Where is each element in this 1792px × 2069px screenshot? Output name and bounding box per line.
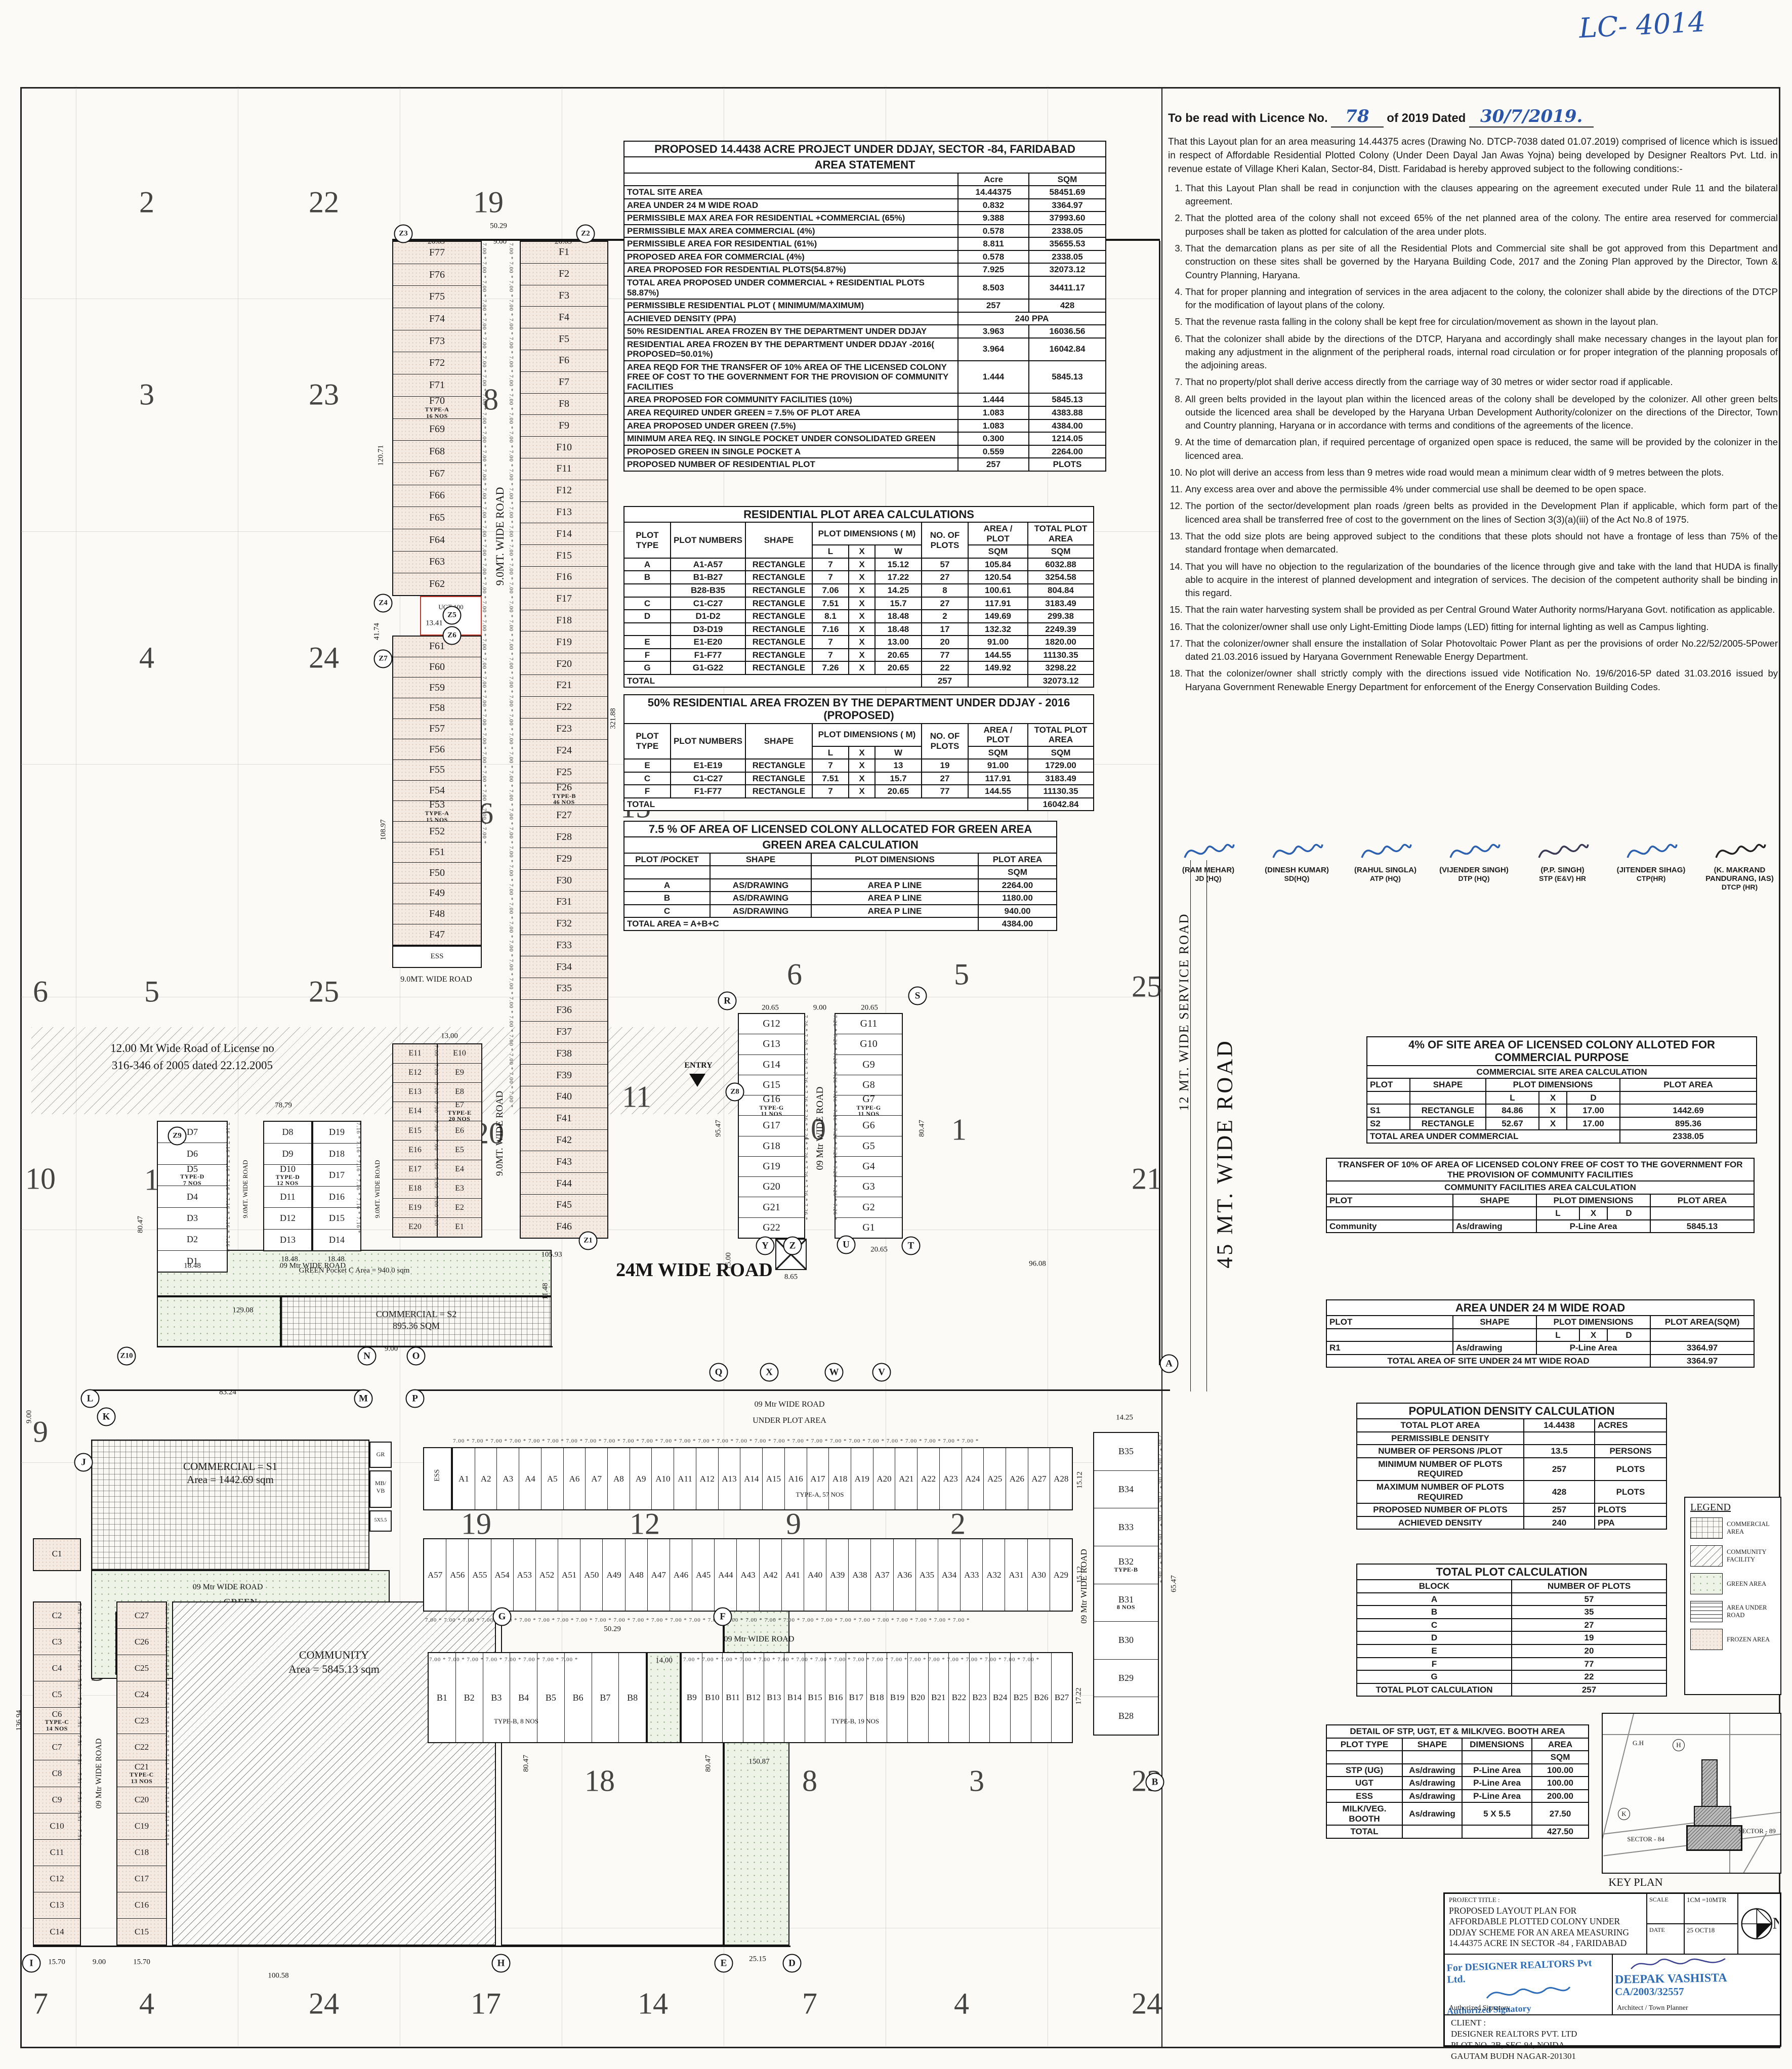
plot-cell: F60 xyxy=(393,657,481,678)
table-cell: L xyxy=(1536,1207,1579,1220)
dimension-text: 25.15 xyxy=(749,1955,766,1964)
table-cell: X xyxy=(1539,1104,1567,1117)
table-cell: 5845.13 xyxy=(1650,1220,1754,1233)
dimension-text: 14.25 xyxy=(1116,1414,1133,1422)
grid-marker-T: T xyxy=(902,1237,921,1255)
plot-cell: F9 xyxy=(521,414,607,436)
legend-swatch xyxy=(1690,1517,1723,1539)
table-cell: RECTANGLE xyxy=(745,597,812,610)
table-cell: 1.083 xyxy=(958,419,1029,433)
plot-cell: A8 xyxy=(607,1448,630,1509)
boundary-line xyxy=(1161,88,1162,2047)
plot-cell: C14 xyxy=(34,1918,80,1945)
table-cell: POPULATION DENSITY CALCULATION xyxy=(1357,1403,1666,1419)
signatory-name: (RAHUL SINGLA) xyxy=(1341,866,1430,874)
table-cell: 57 xyxy=(922,558,968,571)
plot-cell: G8 xyxy=(836,1075,902,1095)
table-cell: F xyxy=(624,785,671,798)
plot-cell: A45 xyxy=(692,1539,714,1611)
survey-number: 1 xyxy=(951,1113,967,1148)
table-cell: 5845.13 xyxy=(1029,361,1106,394)
client-block: CLIENT : DESIGNER REALTORS PVT. LTD PLOT… xyxy=(1445,2015,1780,2064)
plot-cell: E14 xyxy=(393,1102,437,1121)
dimension-text: 15.12 xyxy=(1076,1471,1085,1489)
plan-text: TYPE-A, 57 NOS xyxy=(796,1491,844,1499)
date-value: 25 OCT18 xyxy=(1685,1924,1737,1954)
signatory-name: (P.P. SINGH) xyxy=(1518,866,1607,874)
survey-number: 6 xyxy=(787,957,802,992)
dimension-ticks: 7.51 * 7.51 * 7.51 * 7.51 * 7.51 * 7.51 … xyxy=(164,1603,170,1945)
grid-marker-Z: Z xyxy=(783,1237,802,1255)
signatory-name: (K. MAKRAND PANDURANG, IAS) xyxy=(1695,866,1784,883)
plot-cell: F51 xyxy=(393,842,481,863)
table-cell: RECTANGLE xyxy=(745,649,812,662)
plot-strip: D7D6D5TYPE-D7 NOSD4D3D2D1 xyxy=(157,1121,228,1273)
table-cell: 7.16 xyxy=(812,623,849,636)
dimension-text: 18.48 xyxy=(184,1262,201,1271)
plot-cell: A38 xyxy=(848,1539,870,1611)
plot-cell: A14 xyxy=(740,1448,762,1509)
plot-cell: G11 xyxy=(836,1014,902,1034)
grid-marker-V: V xyxy=(872,1363,891,1382)
dimension-text: 15.00 xyxy=(725,1252,733,1270)
project-title-line: AFFORDABLE PLOTTED COLONY UNDER xyxy=(1449,1916,1642,1927)
plot-cell: F75 xyxy=(393,285,481,308)
plan-text: TYPE-B, 19 NOS xyxy=(831,1717,879,1725)
table-cell: 4384.00 xyxy=(978,917,1057,931)
plan-area-label: GR xyxy=(377,1451,385,1458)
table-cell: NO. OF PLOTS xyxy=(922,724,968,759)
plot-cell: G20 xyxy=(739,1176,804,1197)
plot-cell: F13 xyxy=(521,501,607,523)
table-cell: As/drawing xyxy=(1402,1802,1462,1825)
plot-cell: C15 xyxy=(117,1918,166,1945)
residential-table-grid: RESIDENTIAL PLOT AREA CALCULATIONSPLOT T… xyxy=(623,506,1094,688)
table-cell: PLOT DIMENSIONS ( M) xyxy=(812,724,922,746)
plot-cell: F5 xyxy=(521,328,607,350)
grid-marker-D: D xyxy=(783,1954,802,1973)
dimension-text: 20.65 xyxy=(428,238,445,246)
signature-row: (RAM MEHAR)JD (HQ)(DINESH KUMAR)SD(HQ)(R… xyxy=(1164,837,1784,891)
plot-cell: C9 xyxy=(34,1787,80,1813)
license-date-handwritten: 30/7/2019. xyxy=(1469,106,1594,128)
license-condition: All green belts provided in the layout p… xyxy=(1185,393,1778,433)
plot-cell: F67 xyxy=(393,462,481,485)
plan-text: 9.0MT. WIDE ROAD xyxy=(494,1091,506,1176)
legend-item: COMMERCIAL AREA xyxy=(1690,1517,1775,1539)
plot-cell: F45 xyxy=(521,1194,607,1216)
table-cell: COMMERCIAL SITE AREA CALCULATION xyxy=(1367,1066,1757,1079)
plot-cell: A6 xyxy=(563,1448,586,1509)
plan-text: 12 MT. WIDE SERVICE ROAD xyxy=(1177,913,1192,1111)
table-cell: X xyxy=(849,636,875,649)
table-cell: 18.48 xyxy=(875,610,922,623)
legend-swatch xyxy=(1690,1573,1723,1594)
table-cell: SHAPE xyxy=(1453,1316,1536,1329)
legend-item: GREEN AREA xyxy=(1690,1573,1775,1594)
table-cell xyxy=(1326,1751,1402,1764)
grid-marker-L: L xyxy=(81,1389,100,1408)
plot-cell: A35 xyxy=(915,1539,938,1611)
table-cell: PLOTS xyxy=(1029,458,1106,471)
title-block: PROJECT TITLE : PROPOSED LAYOUT PLAN FOR… xyxy=(1443,1892,1781,2047)
signatory-title: ATP (HQ) xyxy=(1341,874,1430,882)
table-cell: 7.5 % OF AREA OF LICENSED COLONY ALLOCAT… xyxy=(624,821,1057,837)
project-title-line: 14.44375 ACRE IN SECTOR -84 , FARIDABAD xyxy=(1449,1938,1642,1949)
plot-cell: A20 xyxy=(873,1448,895,1509)
table-cell: As/drawing xyxy=(1402,1764,1462,1777)
plan-text: 9.0MT. WIDE ROAD xyxy=(241,1160,249,1218)
table-cell: B xyxy=(624,892,710,905)
plot-cell: B15 xyxy=(805,1653,825,1742)
table-cell: RESIDENTIAL PLOT AREA CALCULATIONS xyxy=(624,506,1094,522)
plot-cell: F73 xyxy=(393,330,481,352)
table-cell: RECTANGLE xyxy=(745,584,812,597)
license-notes: To be read with Licence No. 78 of 2019 D… xyxy=(1168,106,1778,697)
table-cell: PPA xyxy=(1595,1516,1666,1530)
table-cell: 7.26 xyxy=(812,661,849,674)
dimension-text: 80.47 xyxy=(522,1755,531,1772)
table-cell: 0.559 xyxy=(958,445,1029,458)
table-cell: D xyxy=(1357,1631,1512,1644)
boundary-line xyxy=(415,1389,1170,1391)
table-cell: 1442.69 xyxy=(1620,1104,1757,1117)
license-condition: That this Layout Plan shall be read in c… xyxy=(1185,182,1778,208)
table-cell: TOTAL xyxy=(624,798,1028,811)
plot-strip: G12G13G14G15G16TYPE-G11 NOSG17G18G19G20G… xyxy=(738,1013,805,1239)
table-cell xyxy=(1595,1432,1666,1445)
table-cell xyxy=(710,866,811,879)
table-cell: PLOT NUMBERS xyxy=(671,522,745,558)
grid-marker-S: S xyxy=(908,987,927,1005)
plot-cell: F53TYPE-A15 NOS xyxy=(393,800,481,821)
legend-item: AREA UNDER ROAD xyxy=(1690,1601,1775,1622)
table-cell: 0.832 xyxy=(958,199,1029,212)
plot-cell: A47 xyxy=(647,1539,670,1611)
grid-marker-Z9: Z9 xyxy=(168,1127,187,1146)
table-cell: DIMENSIONS xyxy=(1462,1738,1532,1751)
plot-cell: C17 xyxy=(117,1866,166,1892)
road24-table: AREA UNDER 24 M WIDE ROADPLOTSHAPEPLOT D… xyxy=(1326,1299,1755,1368)
plot-cell: B18 xyxy=(866,1653,887,1742)
table-cell: S2 xyxy=(1367,1117,1410,1130)
table-cell: ACHIEVED DENSITY xyxy=(1357,1516,1524,1530)
signature: (K. MAKRAND PANDURANG, IAS)DTCP (HR) xyxy=(1695,837,1784,891)
plot-cell: C22 xyxy=(117,1734,166,1760)
table-cell: TOTAL PLOT AREA xyxy=(1357,1419,1524,1432)
plot-cell: B14 xyxy=(784,1653,805,1742)
plot-cell: A3 xyxy=(496,1448,519,1509)
plot-cell: F39 xyxy=(521,1064,607,1086)
plan-text: 09 Mtr WIDE ROAD xyxy=(815,1087,826,1170)
plan-area: MB/VB xyxy=(369,1470,392,1508)
plot-cell: A16 xyxy=(784,1448,807,1509)
table-cell: 7.51 xyxy=(812,597,849,610)
table-cell: 1.444 xyxy=(958,361,1029,394)
plot-cell: F72 xyxy=(393,352,481,374)
table-cell: SHAPE xyxy=(710,853,811,866)
table-cell: X xyxy=(1579,1329,1607,1342)
plot-cell: F30 xyxy=(521,869,607,891)
table-cell: 20 xyxy=(1512,1644,1666,1658)
commercial-table: 4% OF SITE AREA OF LICENSED COLONY ALLOT… xyxy=(1366,1036,1757,1144)
plot-cell: G7TYPE-G11 NOS xyxy=(836,1095,902,1115)
keyplan-site-shape xyxy=(1701,1759,1718,1809)
signature: (DINESH KUMAR)SD(HQ) xyxy=(1253,837,1341,891)
table-cell: P-Line Area xyxy=(1462,1777,1532,1790)
plot-cell: C4 xyxy=(34,1655,80,1681)
plot-cell: A19 xyxy=(851,1448,873,1509)
plot-cell: F59 xyxy=(393,677,481,698)
table-cell: SQM xyxy=(978,866,1057,879)
legend-item: FROZEN AREA xyxy=(1690,1629,1775,1650)
plot-cell: G22 xyxy=(739,1217,804,1238)
table-cell: 7.925 xyxy=(958,263,1029,276)
table-cell xyxy=(1524,1432,1595,1445)
table-cell: PLOTS xyxy=(1595,1503,1666,1516)
table-cell: F1-F77 xyxy=(671,649,745,662)
table-cell: D xyxy=(1567,1091,1620,1105)
table-cell: AREA REQUIRED UNDER GREEN = 7.5% OF PLOT… xyxy=(624,406,958,419)
survey-number: 14 xyxy=(638,1987,668,2021)
table-cell: 17 xyxy=(922,623,968,636)
table-cell: AREA / PLOT xyxy=(968,724,1028,746)
table-cell: PLOT DIMENSIONS xyxy=(1486,1078,1620,1091)
table-cell: 895.36 xyxy=(1620,1117,1757,1130)
table-cell: F xyxy=(624,649,671,662)
plan-area: COMMERCIAL = S2895.36 SQM xyxy=(281,1296,552,1347)
survey-number: 2 xyxy=(950,1507,966,1542)
plot-cell: A48 xyxy=(625,1539,647,1611)
grid-marker-Z10: Z10 xyxy=(117,1347,136,1366)
table-cell: PERSONS xyxy=(1595,1445,1666,1458)
table-cell: 132.32 xyxy=(968,623,1028,636)
entry-arrow xyxy=(689,1074,705,1087)
plot-cell: B11 xyxy=(722,1653,743,1742)
grid-marker-I: I xyxy=(22,1954,41,1973)
plot-cell: F63 xyxy=(393,551,481,573)
dimension-text: 321.88 xyxy=(609,708,618,729)
table-cell: AREA STATEMENT xyxy=(624,157,1106,173)
plan-area: ESS xyxy=(423,1447,452,1510)
plot-cell: F74 xyxy=(393,308,481,330)
plot-cell: F16 xyxy=(521,566,607,588)
community-table: TRANSFER OF 10% OF AREA OF LICENSED COLO… xyxy=(1326,1158,1755,1233)
plot-strip: F61F60F59F58F57F56F55F54F53TYPE-A15 NOSF… xyxy=(392,636,482,946)
survey-number: 12 xyxy=(630,1507,660,1542)
plot-cell: E7TYPE-E20 NOS xyxy=(438,1102,481,1121)
table-cell: 50% RESIDENTIAL AREA FROZEN BY THE DEPAR… xyxy=(624,325,958,338)
survey-number: 24 xyxy=(309,1987,339,2021)
legend-swatch xyxy=(1690,1629,1723,1650)
plot-cell: B8 xyxy=(618,1653,646,1742)
dimension-text: 50.29 xyxy=(490,222,507,231)
dimension-text: 18.48 xyxy=(327,1255,345,1264)
plot-strip: F77F76F75F74F73F72F71F70TYPE-A16 NOSF69F… xyxy=(392,241,482,596)
plot-cell: B26 xyxy=(1031,1653,1052,1742)
plot-cell: G15 xyxy=(739,1075,804,1095)
table-cell: RECTANGLE xyxy=(1410,1117,1486,1130)
grid-marker-Z7: Z7 xyxy=(374,650,393,668)
table-cell: W xyxy=(875,746,922,759)
survey-number: 25 xyxy=(309,975,339,1009)
signatory-title: DTP (HQ) xyxy=(1430,874,1518,882)
table-cell xyxy=(624,866,710,879)
plot-cell: B12 xyxy=(743,1653,764,1742)
table-cell: SHAPE xyxy=(1410,1078,1486,1091)
dimension-ticks: 7.00 * 7.00 * 7.00 * 7.00 * 7.00 * 7.00 … xyxy=(429,1657,647,1663)
signatory-title: JD (HQ) xyxy=(1164,874,1253,882)
table-cell: TOTAL PLOT CALCULATION xyxy=(1357,1564,1666,1580)
table-cell: 2264.00 xyxy=(1029,445,1106,458)
table-cell: 144.55 xyxy=(968,649,1028,662)
table-cell: D xyxy=(1607,1329,1650,1342)
table-cell: ESS xyxy=(1326,1790,1402,1803)
architect-name-stamp: DEEPAK VASHISTA xyxy=(1615,1970,1778,1987)
table-cell xyxy=(1326,1207,1453,1220)
table-cell: PERMISSIBLE AREA FOR RESIDENTIAL (61%) xyxy=(624,237,958,250)
plot-cell: C26 xyxy=(117,1628,166,1655)
dimension-text: 96.08 xyxy=(1029,1260,1046,1269)
legend: LEGEND COMMERCIAL AREACOMMUNITY FACILITY… xyxy=(1684,1497,1781,1695)
plot-cell: A22 xyxy=(917,1448,939,1509)
table-cell: 1214.05 xyxy=(1029,432,1106,445)
table-cell: P-Line Area xyxy=(1536,1220,1650,1233)
plot-cell: G16TYPE-G11 NOS xyxy=(739,1095,804,1115)
grid-marker-Z4: Z4 xyxy=(374,594,393,613)
table-cell: 15.7 xyxy=(875,772,922,785)
table-cell: 940.00 xyxy=(978,905,1057,918)
dimension-text: 20.65 xyxy=(555,238,572,246)
table-cell: 257 xyxy=(1512,1683,1666,1697)
road24-table-grid: AREA UNDER 24 M WIDE ROADPLOTSHAPEPLOT D… xyxy=(1326,1299,1755,1368)
table-cell: X xyxy=(849,610,875,623)
dimension-text: 83.24 xyxy=(219,1388,236,1397)
table-cell: BLOCK xyxy=(1357,1580,1512,1593)
table-cell: 27 xyxy=(922,571,968,584)
table-cell: PLOT DIMENSIONS xyxy=(1536,1316,1650,1329)
table-cell: TOTAL PLOT AREA xyxy=(1028,522,1094,545)
grid-marker-X: X xyxy=(760,1363,779,1382)
plot-cell: F14 xyxy=(521,523,607,544)
plot-cell: A36 xyxy=(893,1539,915,1611)
project-title-line: DDJAY SCHEME FOR AN AREA MEASURING xyxy=(1449,1927,1642,1938)
table-cell: 17.00 xyxy=(1567,1117,1620,1130)
dimension-text: 9.00 xyxy=(385,1345,398,1354)
table-cell: 1.083 xyxy=(958,406,1029,419)
plot-cell: A42 xyxy=(759,1539,781,1611)
plot-cell: B29 xyxy=(1094,1659,1158,1697)
survey-number: 4 xyxy=(139,641,154,675)
table-cell xyxy=(1402,1825,1462,1838)
plot-cell: G10 xyxy=(836,1034,902,1054)
dimension-text: 108.97 xyxy=(380,819,388,840)
plot-cell: A27 xyxy=(1028,1448,1050,1509)
table-cell: 13.5 xyxy=(1524,1445,1595,1458)
plot-cell: D12 xyxy=(264,1207,311,1229)
table-cell: SHAPE xyxy=(745,522,812,558)
dimension-ticks: 7.16 * 7.16 * 7.16 * 7.16 * 7.16 * 7.16 … xyxy=(225,1122,231,1272)
table-cell xyxy=(1326,1329,1453,1342)
table-cell: SHAPE xyxy=(745,724,812,759)
table-cell: C xyxy=(624,905,710,918)
keyplan-site-shape xyxy=(1686,1825,1742,1851)
dimension-text: 80.47 xyxy=(704,1755,713,1772)
table-cell: 52.67 xyxy=(1486,1117,1539,1130)
plot-cell: B16 xyxy=(825,1653,846,1742)
table-cell: C xyxy=(624,597,671,610)
drawing-sheet: LC- 4014 To be read with Licence No. 78 … xyxy=(0,0,1792,2069)
table-cell: 7 xyxy=(812,558,849,571)
green-table: 7.5 % OF AREA OF LICENSED COLONY ALLOCAT… xyxy=(623,821,1057,931)
architect-label: Architect / Town Planner xyxy=(1617,2004,1688,2012)
table-cell: 257 xyxy=(958,458,1029,471)
signature: (JITENDER SIHAG)CTP(HR) xyxy=(1607,837,1695,891)
table-cell: L xyxy=(812,746,849,759)
plot-cell: E11 xyxy=(393,1044,437,1063)
plot-cell: B20 xyxy=(907,1653,928,1742)
plot-cell: A33 xyxy=(960,1539,982,1611)
table-cell: PROPOSED AREA FOR COMMERCIAL (4%) xyxy=(624,250,958,264)
plot-cell: G5 xyxy=(836,1136,902,1156)
table-cell: PLOT xyxy=(1367,1078,1410,1091)
table-cell: 1180.00 xyxy=(978,892,1057,905)
table-cell: 3.963 xyxy=(958,325,1029,338)
plot-cell: E4 xyxy=(438,1160,481,1179)
table-cell: UGT xyxy=(1326,1777,1402,1790)
table-cell: 144.55 xyxy=(968,785,1028,798)
plot-cell: G3 xyxy=(836,1176,902,1197)
table-cell: 14.4438 xyxy=(1524,1419,1595,1432)
plot-cell: F25 xyxy=(521,761,607,783)
keyplan-k-marker: K xyxy=(1618,1808,1630,1820)
plot-cell: F24 xyxy=(521,739,607,761)
plot-cell: F21 xyxy=(521,674,607,696)
plot-cell: G6 xyxy=(836,1115,902,1135)
table-cell: 120.54 xyxy=(968,571,1028,584)
plot-cell: A7 xyxy=(585,1448,607,1509)
project-title-line: PROPOSED LAYOUT PLAN FOR xyxy=(1449,1906,1642,1916)
table-cell: RECTANGLE xyxy=(745,623,812,636)
plan-text: 09 Mtr WIDE ROAD xyxy=(193,1583,263,1592)
plot-cell: C11 xyxy=(34,1839,80,1866)
plot-cell: B1 xyxy=(429,1653,455,1742)
license-condition: That no property/plot shall derive acces… xyxy=(1185,375,1778,389)
plan-area-label: COMMUNITYArea = 5845.13 sqm xyxy=(288,1648,380,1676)
plot-cell: A23 xyxy=(939,1448,962,1509)
plot-strip: F1F2F3F4F5F6F7F8F9F10F11F12F13F14F15F16F… xyxy=(520,241,608,1239)
plot-cell: C10 xyxy=(34,1813,80,1839)
table-cell: PLOT AREA xyxy=(1650,1194,1754,1207)
survey-number: 2 xyxy=(139,185,154,220)
survey-number: 19 xyxy=(461,1507,491,1542)
table-cell: SQM xyxy=(1028,545,1094,558)
table-cell: D3-D19 xyxy=(671,623,745,636)
legend-title: LEGEND xyxy=(1690,1502,1775,1513)
plotcalc-table: TOTAL PLOT CALCULATIONBLOCKNUMBER OF PLO… xyxy=(1356,1564,1667,1697)
plot-cell: A28 xyxy=(1050,1448,1072,1509)
table-cell: AS/DRAWING xyxy=(710,892,811,905)
table-cell: 20.65 xyxy=(875,661,922,674)
plot-cell: B17 xyxy=(846,1653,866,1742)
plot-cell: B24 xyxy=(989,1653,1010,1742)
plan-area-label: COMMERCIAL = S2895.36 SQM xyxy=(376,1308,457,1331)
table-cell: AREA UNDER 24 M WIDE ROAD xyxy=(624,199,958,212)
plot-cell: A41 xyxy=(781,1539,804,1611)
plot-cell: F32 xyxy=(521,913,607,935)
residential-table: RESIDENTIAL PLOT AREA CALCULATIONSPLOT T… xyxy=(623,506,1094,688)
table-cell: AREA REQD FOR THE TRANSFER OF 10% AREA O… xyxy=(624,361,958,394)
